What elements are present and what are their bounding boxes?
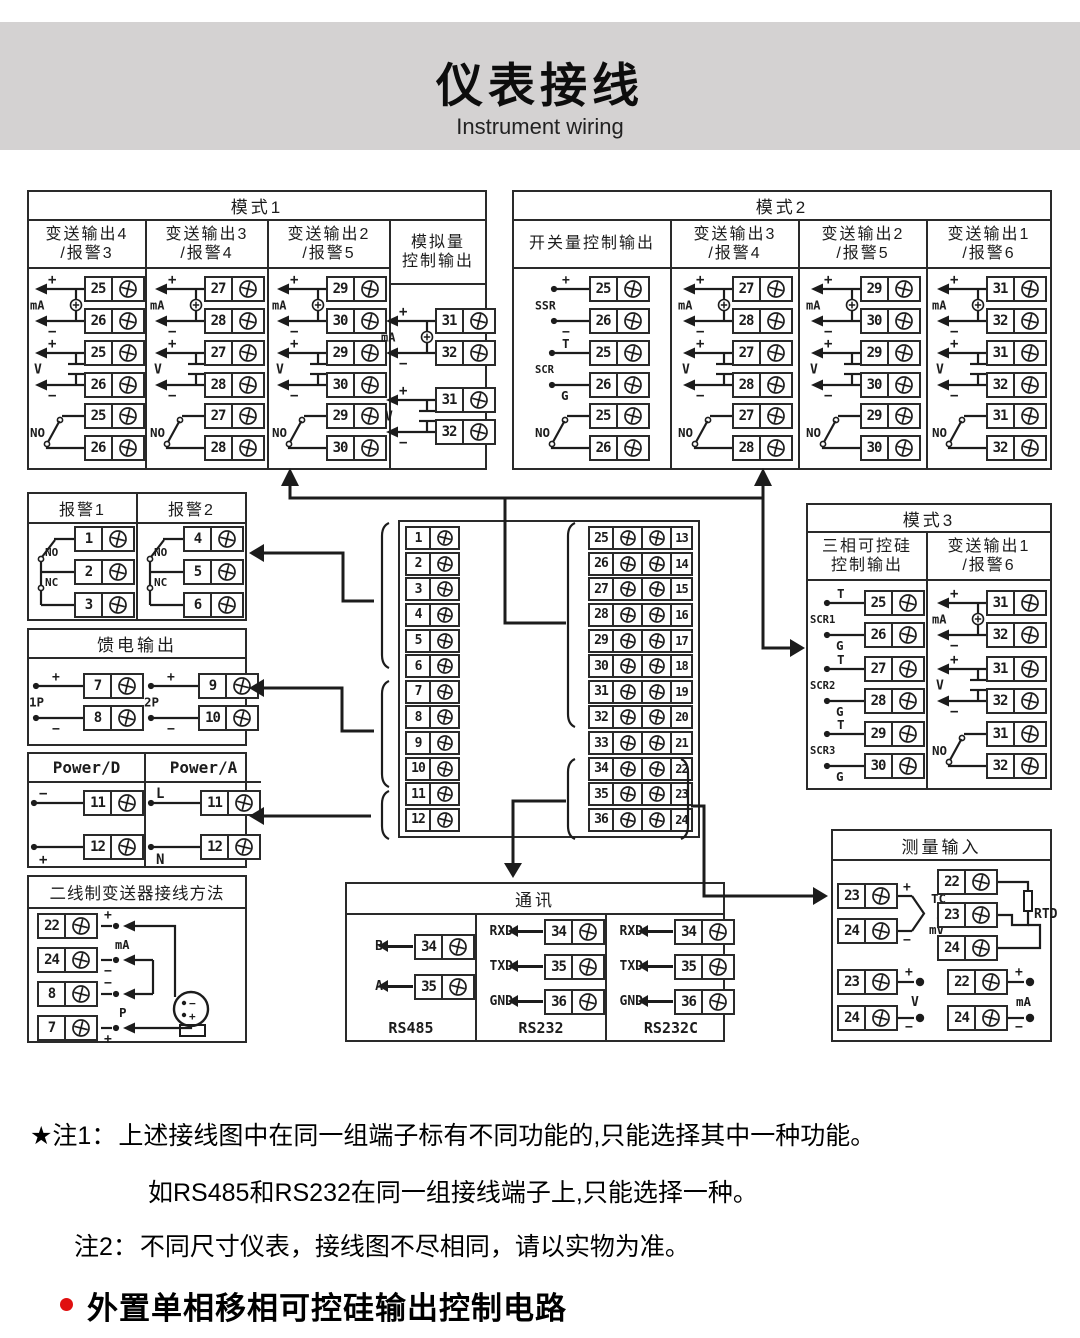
svg-text:+: + xyxy=(950,336,958,352)
terminal-8: 8 xyxy=(83,705,144,731)
screw-icon xyxy=(868,922,894,940)
terminal-1: 1 xyxy=(405,526,460,550)
svg-text:mA: mA xyxy=(806,299,821,313)
svg-text:−: − xyxy=(903,933,911,948)
terminal-31: 31 xyxy=(986,721,1047,747)
panel-mode3: 模式3 三相可控硅控制输出 TSCR1G2526TSCR2G2728TSCR3G… xyxy=(806,503,1052,790)
terminal-25: 25 xyxy=(84,276,145,302)
wiring-symbol: +−V xyxy=(381,387,435,445)
alarm2-wiring: NONC456 xyxy=(138,524,245,619)
screw-icon xyxy=(868,887,894,905)
measure-ma: 2224+−mA xyxy=(947,969,1042,1031)
comm-title: 通讯 xyxy=(347,884,723,915)
screw-icon xyxy=(68,951,94,969)
screw-icon xyxy=(115,312,141,330)
screw-icon xyxy=(68,985,94,1003)
svg-text:mA: mA xyxy=(115,938,130,952)
screw-icon xyxy=(620,344,646,362)
svg-text:T: T xyxy=(837,652,845,667)
mode2-col-2: 变送输出3/报警4 +−mA2728+−V2728NO2728 xyxy=(672,221,800,468)
mode1-col-2: 变送输出3/报警4 +−mA2728+−V2728NO2728 xyxy=(147,221,269,468)
terminal-group: TSCR3G2930 xyxy=(810,721,925,779)
screw-icon xyxy=(891,407,917,425)
screw-icon xyxy=(445,978,471,996)
terminal-27: 27 xyxy=(732,276,793,302)
screw-icon xyxy=(705,958,731,976)
terminal-28-16: 2816 xyxy=(588,603,693,627)
screw-icon xyxy=(229,677,255,695)
screw-icon xyxy=(891,439,917,457)
terminal-36: 36 xyxy=(544,989,605,1015)
page-header: 仪表接线 Instrument wiring xyxy=(0,22,1080,150)
terminal-group: TSCR1G2526 xyxy=(810,590,925,648)
svg-text:+: + xyxy=(905,965,913,980)
terminal-3: 3 xyxy=(405,577,460,601)
terminal-25: 25 xyxy=(589,403,650,429)
terminal-12: 12 xyxy=(83,834,144,860)
wiring-symbol: +−V xyxy=(932,340,986,398)
terminal-3: 3 xyxy=(74,592,135,618)
svg-text:N: N xyxy=(156,852,164,868)
screw-icon xyxy=(115,439,141,457)
note-2: 注2：不同尺寸仪表，接线图不尽相同，请以实物为准。 xyxy=(74,1233,1050,1262)
screw-icon xyxy=(235,439,261,457)
terminal-group: NO3132 xyxy=(932,721,1047,779)
screw-icon xyxy=(620,376,646,394)
screw-icon xyxy=(105,596,131,614)
terminal-group: +−V3132 xyxy=(381,387,496,445)
terminal-26: 26 xyxy=(589,372,650,398)
screw-icon xyxy=(434,709,456,725)
screw-icon xyxy=(357,407,383,425)
terminal-group: +−mA2728 xyxy=(150,276,265,334)
wiring-symbol: +−mA xyxy=(932,590,986,648)
note-1: ★注1：上述接线图中在同一组端子标有不同功能的,只能选择其中一种功能。 xyxy=(30,1122,1050,1151)
terminal-23: 23 xyxy=(837,883,898,909)
svg-text:V: V xyxy=(276,362,284,377)
svg-text:−: − xyxy=(104,976,112,991)
terminal-34: 34 xyxy=(674,919,735,945)
wiring-symbol: NO xyxy=(535,403,589,461)
wiring-symbol: +−V xyxy=(150,340,204,398)
screw-icon xyxy=(434,633,456,649)
terminal-11: 11 xyxy=(200,790,261,816)
comm-rs232c: RXD34TXD35GND36 RS232C xyxy=(607,915,735,1040)
svg-text:−: − xyxy=(399,356,407,372)
mode2-title: 模式2 xyxy=(514,192,1050,221)
terminal-27-15: 2715 xyxy=(588,577,693,601)
screw-icon xyxy=(235,376,261,394)
wiring-symbol: NO xyxy=(932,403,986,461)
screw-icon xyxy=(891,312,917,330)
terminal-36: 36 xyxy=(674,989,735,1015)
terminal-11: 11 xyxy=(83,790,144,816)
svg-text:+: + xyxy=(39,852,47,868)
svg-text:+: + xyxy=(168,336,176,352)
terminal-group: +−V2728 xyxy=(150,340,265,398)
terminal-29: 29 xyxy=(860,276,921,302)
screw-icon xyxy=(466,312,492,330)
svg-text:T: T xyxy=(837,586,845,601)
terminal-8: 8 xyxy=(37,981,98,1007)
screw-icon xyxy=(763,407,789,425)
screw-icon xyxy=(357,439,383,457)
svg-text:SSR: SSR xyxy=(535,299,556,313)
screw-icon xyxy=(617,786,639,802)
arrow-left-icon xyxy=(647,965,673,967)
screw-icon xyxy=(115,407,141,425)
terminal-4: 4 xyxy=(405,603,460,627)
svg-text:V: V xyxy=(911,995,919,1010)
terminal-31-19: 3119 xyxy=(588,680,693,704)
wiring-symbol: NO xyxy=(932,721,986,779)
terminal-28: 28 xyxy=(732,435,793,461)
screw-icon xyxy=(646,735,668,751)
screw-icon xyxy=(68,917,94,935)
screw-icon xyxy=(978,1009,1004,1027)
wiring-symbol: +−mA xyxy=(30,276,84,334)
svg-text:+: + xyxy=(950,272,958,288)
screw-icon xyxy=(620,439,646,457)
screw-icon xyxy=(891,280,917,298)
screw-icon xyxy=(617,556,639,572)
terminal-31: 31 xyxy=(435,308,496,334)
svg-text:NO: NO xyxy=(678,425,693,440)
screw-icon xyxy=(434,684,456,700)
panel-two-wire-transmitter: 二线制变送器接线方法 222487+−−+mAP−+ xyxy=(27,875,247,1043)
panel-mode1: 模式1 变送输出4/报警3 +−mA2526+−V2526NO2526 变送输出… xyxy=(27,190,487,470)
svg-text:SCR3: SCR3 xyxy=(810,745,835,757)
terminal-8: 8 xyxy=(405,705,460,729)
alarm2-title: 报警2 xyxy=(138,494,245,522)
svg-text:−: − xyxy=(399,435,407,451)
comm-rs232: RXD34TXD35GND36 RS232 xyxy=(477,915,607,1040)
terminal-7: 7 xyxy=(405,680,460,704)
terminal-24: 24 xyxy=(947,1005,1008,1031)
arrow-left-icon xyxy=(517,965,543,967)
screw-icon xyxy=(434,607,456,623)
svg-text:mA: mA xyxy=(932,299,947,313)
screw-icon xyxy=(434,658,456,674)
terminal-32: 32 xyxy=(986,622,1047,648)
svg-text:NO: NO xyxy=(150,425,165,440)
svg-text:mA: mA xyxy=(678,299,693,313)
svg-text:−: − xyxy=(290,388,298,404)
terminal-35: 35 xyxy=(544,954,605,980)
note-1b: 如RS485和RS232在同一组接线端子上,只能选择一种。 xyxy=(148,1179,1050,1208)
svg-text:+: + xyxy=(950,652,958,668)
terminal-22: 22 xyxy=(937,869,998,895)
svg-text:mA: mA xyxy=(381,331,396,345)
terminal-group: +−V2526 xyxy=(30,340,145,398)
svg-text:T: T xyxy=(562,336,570,351)
terminal-31: 31 xyxy=(986,656,1047,682)
svg-text:−: − xyxy=(52,722,60,737)
terminal-32: 32 xyxy=(435,419,496,445)
svg-text:NO: NO xyxy=(272,425,287,440)
svg-text:+: + xyxy=(168,272,176,288)
screw-icon xyxy=(763,439,789,457)
terminal-26-14: 2614 xyxy=(588,552,693,576)
terminal-group: +−V2930 xyxy=(806,340,921,398)
wiring-symbol: +1P− xyxy=(29,673,83,731)
screw-icon xyxy=(575,993,601,1011)
arrow-left-icon xyxy=(647,1000,673,1002)
screw-icon xyxy=(617,633,639,649)
terminal-32: 32 xyxy=(986,688,1047,714)
screw-icon xyxy=(646,786,668,802)
svg-text:+: + xyxy=(824,336,832,352)
svg-text:NO: NO xyxy=(45,546,59,559)
terminal-32: 32 xyxy=(986,372,1047,398)
terminal-32: 32 xyxy=(986,435,1047,461)
svg-text:+: + xyxy=(48,272,56,288)
svg-text:+: + xyxy=(52,670,60,685)
terminal-6: 6 xyxy=(183,592,244,618)
screw-icon xyxy=(434,735,456,751)
svg-text:NO: NO xyxy=(30,425,45,440)
svg-text:NO: NO xyxy=(932,743,947,758)
terminal-26: 26 xyxy=(84,308,145,334)
terminal-30: 30 xyxy=(326,435,387,461)
comm-row: A35 xyxy=(347,974,475,1000)
screw-icon xyxy=(620,312,646,330)
svg-text:+: + xyxy=(290,272,298,288)
screw-icon xyxy=(1017,376,1043,394)
terminal-28: 28 xyxy=(864,688,925,714)
measure-title: 测量输入 xyxy=(833,831,1050,861)
terminal-12: 12 xyxy=(405,808,460,832)
terminal-25: 25 xyxy=(84,340,145,366)
screw-icon xyxy=(895,626,921,644)
screw-icon xyxy=(1017,660,1043,678)
panel-feed-output: 馈电输出 +1P−78+2P−910 xyxy=(27,628,247,746)
screw-icon xyxy=(357,344,383,362)
terminal-32: 32 xyxy=(986,753,1047,779)
terminal-22: 22 xyxy=(947,969,1008,995)
terminal-25: 25 xyxy=(84,403,145,429)
mode3-title: 模式3 xyxy=(808,505,1050,533)
terminal-26: 26 xyxy=(589,308,650,334)
svg-text:NO: NO xyxy=(806,425,821,440)
terminal-28: 28 xyxy=(732,308,793,334)
svg-text:−: − xyxy=(824,388,832,404)
screw-icon xyxy=(115,280,141,298)
svg-text:SCR2: SCR2 xyxy=(810,680,835,692)
svg-text:V: V xyxy=(810,362,818,377)
terminal-27: 27 xyxy=(732,340,793,366)
wiring-symbol: +−mA xyxy=(381,308,435,366)
screw-icon xyxy=(763,312,789,330)
screw-icon xyxy=(617,761,639,777)
terminal-7: 7 xyxy=(37,1015,98,1041)
svg-text:+: + xyxy=(290,336,298,352)
arrow-left-icon xyxy=(387,985,413,987)
terminal-26: 26 xyxy=(864,622,925,648)
svg-text:+: + xyxy=(399,304,407,320)
svg-text:V: V xyxy=(682,362,690,377)
screw-icon xyxy=(445,938,471,956)
wiring-symbol: +−mA xyxy=(932,276,986,334)
svg-text:−: − xyxy=(167,722,175,737)
terminal-33-21: 3321 xyxy=(588,731,693,755)
svg-text:+: + xyxy=(189,1010,196,1023)
alarm1-wiring: NONC123 xyxy=(29,524,138,619)
comm-row: GND36 xyxy=(607,989,735,1015)
panel-measure-input: 测量输入 2324+−TC/mV 222324RTD 2324+−V 2224+… xyxy=(831,829,1052,1042)
screw-icon xyxy=(357,312,383,330)
transmitter-symbol: +−−+mAP−+ xyxy=(101,913,239,1045)
svg-text:NC: NC xyxy=(154,576,167,589)
screw-icon xyxy=(114,794,140,812)
comm-row: GND36 xyxy=(477,989,605,1015)
svg-text:L: L xyxy=(156,786,164,802)
svg-text:mA: mA xyxy=(1016,994,1032,1009)
svg-text:−: − xyxy=(48,388,56,404)
screw-icon xyxy=(617,658,639,674)
terminal-27: 27 xyxy=(204,340,265,366)
terminal-10: 10 xyxy=(405,757,460,781)
screw-icon xyxy=(114,709,140,727)
terminal-group: NO2526 xyxy=(535,403,650,461)
svg-text:P: P xyxy=(119,1005,127,1020)
screw-icon xyxy=(968,873,994,891)
svg-text:+: + xyxy=(562,273,570,288)
screw-icon xyxy=(105,563,131,581)
screw-icon xyxy=(617,607,639,623)
terminal-group: NO3132 xyxy=(932,403,1047,461)
terminal-34: 34 xyxy=(414,934,475,960)
terminal-group: +−mA2526 xyxy=(30,276,145,334)
screw-icon xyxy=(434,556,456,572)
terminal-group: NO2930 xyxy=(272,403,387,461)
bullet-icon xyxy=(60,1298,73,1311)
svg-text:G: G xyxy=(836,769,844,784)
terminal-group: +−mA2930 xyxy=(806,276,921,334)
terminal-25-13: 2513 xyxy=(588,526,693,550)
terminal-group: −+1112 xyxy=(29,790,144,860)
screw-icon xyxy=(895,692,921,710)
screw-icon xyxy=(646,607,668,623)
terminal-28: 28 xyxy=(204,308,265,334)
screw-icon xyxy=(575,923,601,941)
screw-icon xyxy=(214,596,240,614)
svg-text:+: + xyxy=(48,336,56,352)
svg-text:NO: NO xyxy=(535,425,550,440)
terminal-26: 26 xyxy=(84,372,145,398)
terminal-29: 29 xyxy=(326,276,387,302)
terminal-31: 31 xyxy=(986,590,1047,616)
svg-text:NC: NC xyxy=(45,576,58,589)
comm-row: RXD34 xyxy=(477,919,605,945)
screw-icon xyxy=(646,684,668,700)
feed-title: 馈电输出 xyxy=(29,630,245,659)
svg-text:SCR: SCR xyxy=(535,364,555,376)
screw-icon xyxy=(115,344,141,362)
screw-icon xyxy=(235,344,261,362)
page-subtitle: Instrument wiring xyxy=(0,114,1080,140)
mode2-col-4: 变送输出1/报警6 +−mA3132+−V3132NO3132 xyxy=(928,221,1050,468)
svg-text:mA: mA xyxy=(932,613,947,627)
section-heading-text: 外置单相移相可控硅输出控制电路 xyxy=(87,1283,567,1328)
svg-text:mA: mA xyxy=(272,299,287,313)
screw-icon xyxy=(646,581,668,597)
page-title: 仪表接线 xyxy=(0,22,1080,116)
svg-text:2P: 2P xyxy=(144,694,159,709)
terminal-31: 31 xyxy=(986,276,1047,302)
svg-text:mA: mA xyxy=(150,299,165,313)
terminal-group: TSCRG2526 xyxy=(535,340,650,398)
twowire-title: 二线制变送器接线方法 xyxy=(29,877,245,909)
wiring-symbol: +SSR− xyxy=(535,276,589,334)
comm-row: B34 xyxy=(347,934,475,960)
wiring-symbol: +−V xyxy=(272,340,326,398)
wiring-symbol: +−mA xyxy=(272,276,326,334)
terminal-29: 29 xyxy=(326,340,387,366)
terminal-34: 34 xyxy=(544,919,605,945)
screw-icon xyxy=(231,838,257,856)
screw-icon xyxy=(617,530,639,546)
terminal-1: 1 xyxy=(74,526,135,552)
screw-icon xyxy=(466,344,492,362)
mode1-col-3: 变送输出2/报警5 +−mA2930+−V2930NO2930 xyxy=(269,221,391,468)
terminal-group: +−V3132 xyxy=(932,656,1047,714)
mode3-col-2: 变送输出1/报警6 +−mA3132+−V3132NO3132 xyxy=(928,533,1050,788)
wiring-symbol: +−mA xyxy=(150,276,204,334)
terminal-2: 2 xyxy=(74,559,135,585)
wiring-symbol: TSCR3G xyxy=(810,721,864,779)
screw-icon xyxy=(575,958,601,976)
terminal-5: 5 xyxy=(405,629,460,653)
terminal-group: +−mA3132 xyxy=(932,276,1047,334)
wiring-symbol: NO xyxy=(30,403,84,461)
instrument-wiring-page: 仪表接线 Instrument wiring xyxy=(0,0,1080,1338)
svg-text:G: G xyxy=(561,388,569,403)
screw-icon xyxy=(235,407,261,425)
screw-icon xyxy=(434,530,456,546)
terminal-29: 29 xyxy=(326,403,387,429)
terminal-25: 25 xyxy=(589,340,650,366)
terminal-32-20: 3220 xyxy=(588,705,693,729)
terminal-7: 7 xyxy=(83,673,144,699)
screw-icon xyxy=(895,660,921,678)
screw-icon xyxy=(1017,725,1043,743)
terminal-29: 29 xyxy=(860,403,921,429)
power-a-col: Power/A LN1112 xyxy=(146,754,261,866)
power-d-col: Power/D −+1112 xyxy=(29,754,146,866)
terminal-30: 30 xyxy=(860,435,921,461)
terminal-36-24: 3624 xyxy=(588,808,693,832)
terminal-group: +−V2930 xyxy=(272,340,387,398)
screw-icon xyxy=(214,530,240,548)
terminal-25: 25 xyxy=(864,590,925,616)
terminal-12: 12 xyxy=(200,834,261,860)
panel-alarm: 报警1 报警2 NONC123 NONC456 xyxy=(27,492,247,621)
svg-text:+: + xyxy=(950,586,958,602)
terminal-group: NO2526 xyxy=(30,403,145,461)
terminal-group: +−mA3132 xyxy=(932,590,1047,648)
screw-icon xyxy=(1017,626,1043,644)
terminal-30: 30 xyxy=(326,372,387,398)
terminal-10: 10 xyxy=(198,705,259,731)
terminal-24: 24 xyxy=(937,935,998,961)
screw-icon xyxy=(1017,407,1043,425)
svg-text:−: − xyxy=(39,786,47,802)
terminal-30: 30 xyxy=(860,308,921,334)
svg-text:+: + xyxy=(903,880,911,895)
terminal-28: 28 xyxy=(204,372,265,398)
terminal-group: TSCR2G2728 xyxy=(810,656,925,714)
